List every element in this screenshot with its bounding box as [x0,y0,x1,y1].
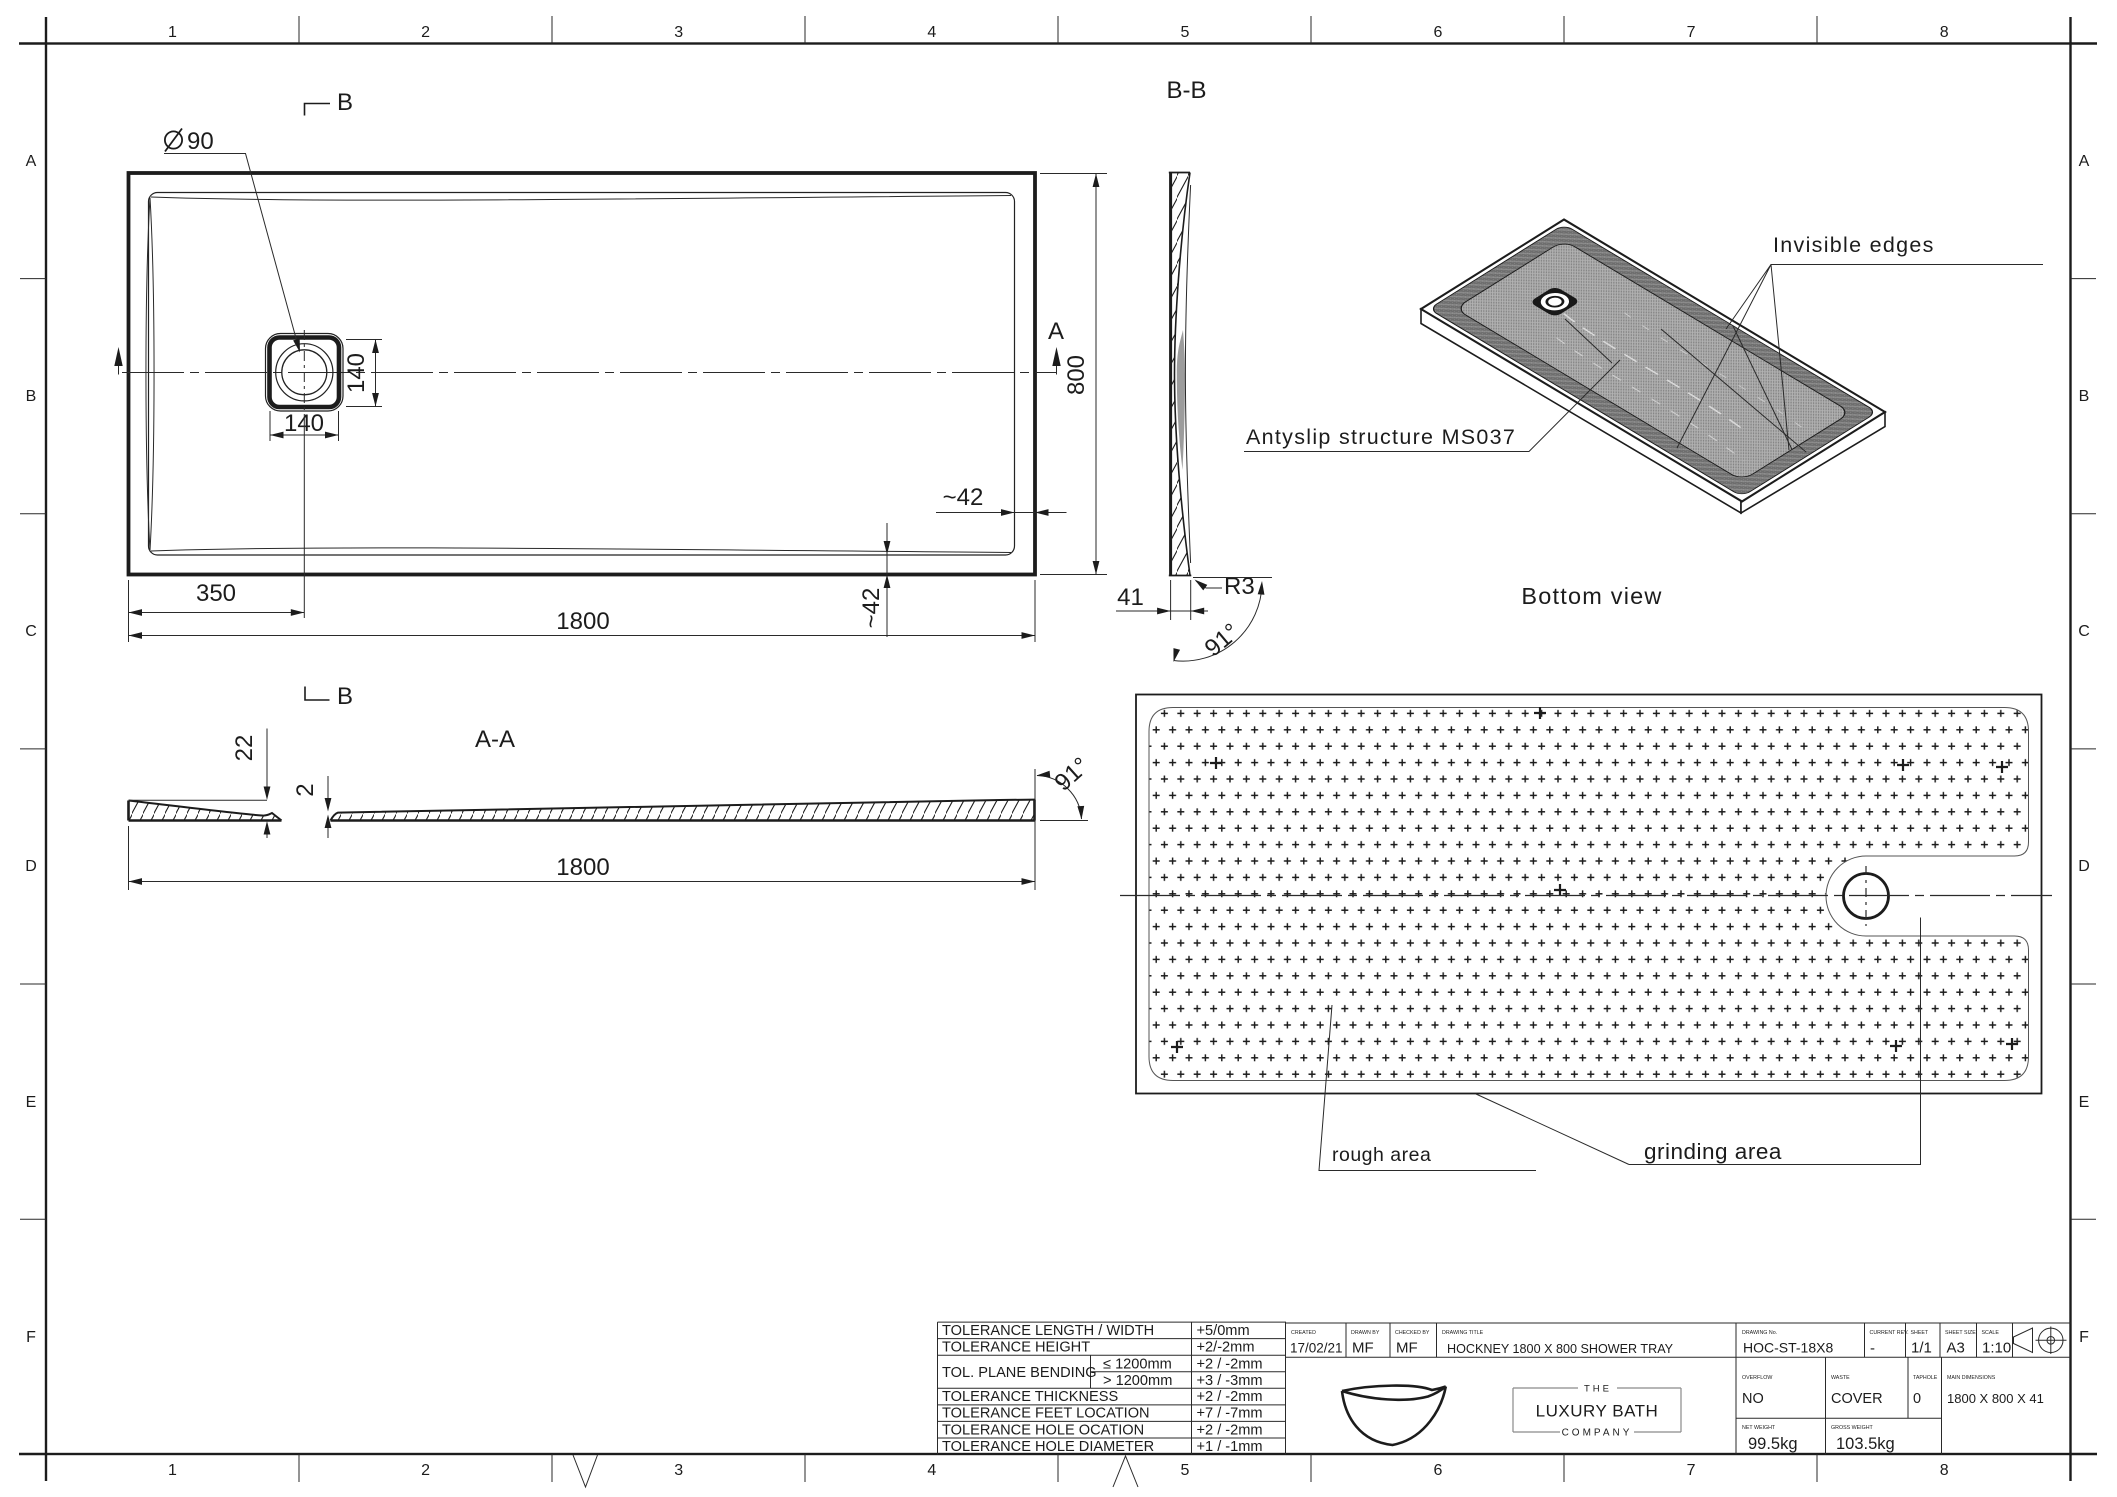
svg-text:2: 2 [421,24,430,41]
svg-text:+7 / -7mm: +7 / -7mm [1197,1406,1263,1422]
svg-text:41: 41 [1117,584,1144,611]
svg-text:~42: ~42 [943,484,984,511]
svg-text:SCALE: SCALE [1982,1330,2000,1336]
svg-text:A-A: A-A [475,726,515,753]
svg-text:COVER: COVER [1831,1391,1883,1407]
svg-text:GROSS WEIGHT: GROSS WEIGHT [1831,1425,1874,1431]
svg-text:E: E [2079,1094,2090,1111]
svg-text:MF: MF [1396,1340,1418,1357]
svg-text:99.5kg: 99.5kg [1748,1435,1798,1453]
svg-text:NET WEIGHT: NET WEIGHT [1742,1425,1776,1431]
svg-text:4: 4 [927,1462,936,1479]
svg-text:TOLERANCE HEIGHT: TOLERANCE HEIGHT [942,1340,1090,1356]
svg-text:rough area: rough area [1332,1144,1431,1166]
svg-text:TOL. PLANE BENDING: TOL. PLANE BENDING [942,1365,1097,1381]
svg-text:2: 2 [292,783,319,796]
svg-text:E: E [26,1094,37,1111]
svg-text:DRAWING No.: DRAWING No. [1742,1330,1777,1336]
svg-text:SHEET SIZE: SHEET SIZE [1945,1330,1976,1336]
svg-text:WASTE: WASTE [1831,1375,1850,1381]
svg-text:F: F [26,1329,36,1346]
svg-text:A3: A3 [1947,1340,1965,1357]
svg-text:800: 800 [1063,355,1090,395]
svg-text:B: B [2079,388,2090,405]
svg-text:MF: MF [1352,1340,1374,1357]
svg-text:Invisible edges: Invisible edges [1773,233,1935,257]
svg-text:3: 3 [674,24,683,41]
svg-text:+2 / -2mm: +2 / -2mm [1197,1422,1263,1438]
svg-text:2: 2 [421,1462,430,1479]
svg-text:90: 90 [187,128,214,155]
svg-text:A: A [26,153,37,170]
svg-text:CREATED: CREATED [1291,1330,1316,1336]
svg-text:NO: NO [1742,1391,1764,1407]
svg-text:CHECKED BY: CHECKED BY [1395,1330,1430,1336]
svg-text:TOLERANCE LENGTH / WIDTH: TOLERANCE LENGTH / WIDTH [942,1323,1154,1339]
svg-text:0: 0 [1913,1391,1921,1407]
svg-text:+2 / -2mm: +2 / -2mm [1197,1389,1263,1405]
svg-text:7: 7 [1687,24,1696,41]
svg-text:6: 6 [1434,1462,1443,1479]
svg-text:5: 5 [1180,1462,1189,1479]
svg-text:1:10: 1:10 [1982,1340,2011,1357]
svg-text:D: D [2078,858,2090,875]
svg-text:1/1: 1/1 [1911,1340,1932,1357]
svg-text:TOLERANCE THICKNESS: TOLERANCE THICKNESS [942,1389,1119,1405]
svg-text:DRAWN BY: DRAWN BY [1351,1330,1380,1336]
svg-text:B: B [337,683,353,710]
svg-text:+3 / -3mm: +3 / -3mm [1197,1373,1263,1389]
svg-text:8: 8 [1940,1462,1949,1479]
svg-text:103.5kg: 103.5kg [1836,1435,1895,1453]
svg-text:COMPANY: COMPANY [1562,1428,1633,1439]
svg-text:TAPHOLE: TAPHOLE [1913,1375,1938,1381]
svg-text:7: 7 [1687,1462,1696,1479]
svg-text:HOC-ST-18X8: HOC-ST-18X8 [1743,1340,1833,1356]
svg-text:+5/0mm: +5/0mm [1197,1323,1250,1339]
svg-text:A: A [2079,153,2090,170]
svg-text:TOLERANCE HOLE OCATION: TOLERANCE HOLE OCATION [942,1422,1144,1438]
svg-text:1800 X 800 X 41: 1800 X 800 X 41 [1947,1391,2044,1406]
svg-text:1: 1 [168,24,177,41]
svg-text:SHEET: SHEET [1911,1330,1929,1336]
svg-text:D: D [25,858,37,875]
svg-text:OVERFLOW: OVERFLOW [1742,1375,1772,1381]
svg-text:~42: ~42 [858,588,885,629]
svg-text:+1 / -1mm: +1 / -1mm [1197,1439,1263,1455]
svg-text:350: 350 [196,580,236,607]
svg-text:TOLERANCE HOLE DIAMETER: TOLERANCE HOLE DIAMETER [942,1439,1154,1455]
svg-text:> 1200mm: > 1200mm [1103,1373,1172,1389]
svg-text:MAIN DIMENSIONS: MAIN DIMENSIONS [1947,1375,1996,1381]
svg-text:1800: 1800 [556,608,609,635]
svg-text:B: B [26,388,37,405]
svg-text:6: 6 [1434,24,1443,41]
svg-text:1800: 1800 [556,854,609,881]
svg-text:TOLERANCE FEET LOCATION: TOLERANCE FEET LOCATION [942,1406,1150,1422]
svg-text:CURRENT REV.: CURRENT REV. [1870,1330,1909,1336]
svg-text:5: 5 [1180,24,1189,41]
svg-text:4: 4 [927,24,936,41]
svg-text:1: 1 [168,1462,177,1479]
svg-text:17/02/21: 17/02/21 [1290,1341,1343,1356]
svg-text:F: F [2079,1329,2089,1346]
svg-text:grinding area: grinding area [1644,1139,1782,1164]
svg-text:THE: THE [1584,1384,1612,1395]
svg-text:3: 3 [674,1462,683,1479]
svg-text:+2 / -2mm: +2 / -2mm [1197,1357,1263,1373]
svg-text:22: 22 [231,735,258,762]
svg-text:140: 140 [343,353,370,393]
svg-text:+2/-2mm: +2/-2mm [1197,1340,1255,1356]
svg-text:C: C [25,623,37,640]
svg-text:8: 8 [1940,24,1949,41]
svg-text:Bottom view: Bottom view [1521,583,1662,609]
svg-text:B-B: B-B [1166,77,1206,104]
svg-text:HOCKNEY 1800 X 800 SHOWER TRAY: HOCKNEY 1800 X 800 SHOWER TRAY [1447,1342,1674,1356]
svg-text:LUXURY BATH: LUXURY BATH [1536,1402,1659,1421]
svg-text:Antyslip structure MS037: Antyslip structure MS037 [1246,425,1516,449]
svg-text:-: - [1870,1340,1875,1357]
svg-text:A: A [1048,318,1064,345]
svg-text:≤ 1200mm: ≤ 1200mm [1103,1357,1172,1373]
svg-text:B: B [337,89,353,116]
svg-text:DRAWING TITLE: DRAWING TITLE [1442,1330,1484,1336]
svg-text:C: C [2078,623,2090,640]
